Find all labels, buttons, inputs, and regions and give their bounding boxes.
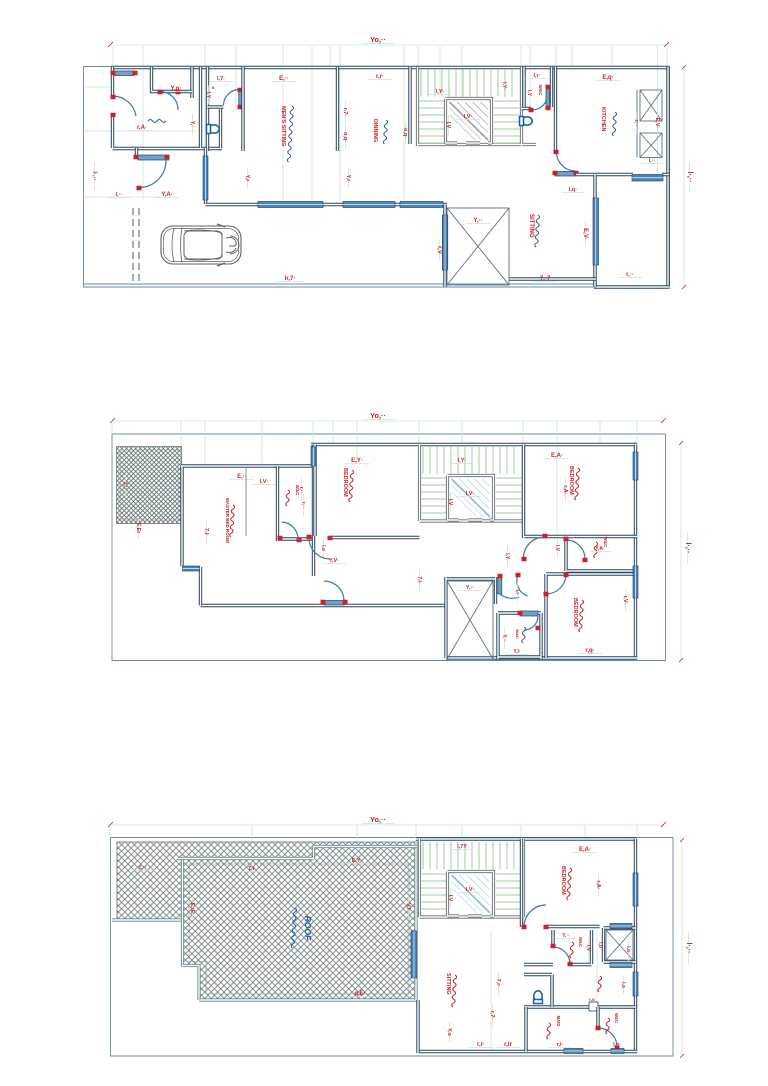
svg-text:7,l·: 7,l· bbox=[416, 576, 422, 584]
svg-text:E,rE: E,rE bbox=[189, 902, 195, 913]
svg-text:r,V: r,V bbox=[436, 246, 442, 254]
svg-text:Y,A·: Y,A· bbox=[595, 546, 605, 552]
svg-text:r,lr: r,lr bbox=[504, 1042, 512, 1048]
svg-text:r,r·: r,r· bbox=[376, 74, 384, 80]
svg-text:r,l·: r,l· bbox=[557, 1042, 564, 1048]
svg-text:E,V·: E,V· bbox=[582, 228, 588, 240]
svg-text:l,o·: l,o· bbox=[613, 1042, 621, 1048]
svg-text:l,V·: l,V· bbox=[466, 887, 475, 893]
svg-text:l,··: l,·· bbox=[116, 192, 123, 198]
svg-text:E,q·: E,q· bbox=[602, 75, 613, 81]
svg-text:Y,r: Y,r bbox=[244, 175, 250, 183]
svg-text:Y,··: Y,·· bbox=[466, 585, 474, 591]
svg-text:r,A·: r,A· bbox=[595, 880, 601, 889]
svg-text:l,V: l,V bbox=[585, 945, 591, 952]
svg-text:MEN'S SITTING: MEN'S SITTING bbox=[280, 106, 286, 146]
svg-text:l,V·: l,V· bbox=[466, 491, 475, 497]
svg-text:q,E·: q,E· bbox=[354, 991, 365, 997]
svg-text:Y,o·: Y,o· bbox=[171, 86, 182, 92]
svg-text:Y,··: Y,·· bbox=[501, 634, 507, 642]
svg-text:l,Y·: l,Y· bbox=[501, 82, 507, 90]
svg-text:BEDROOM: BEDROOM bbox=[560, 866, 566, 895]
svg-text:DINNING: DINNING bbox=[372, 119, 378, 142]
svg-text:Y,o: Y,o bbox=[446, 1028, 452, 1037]
svg-text:l,V·: l,V· bbox=[464, 114, 473, 120]
svg-text:l·,··: l·,·· bbox=[91, 171, 97, 180]
svg-text:l,V·: l,V· bbox=[260, 479, 269, 485]
svg-text:E,Er: E,Er bbox=[135, 522, 141, 534]
svg-text:Y,A·: Y,A· bbox=[161, 192, 172, 198]
svg-text:E,Y·: E,Y· bbox=[351, 458, 363, 464]
svg-text:l,o: l,o bbox=[320, 545, 326, 551]
svg-text:E,A·: E,A· bbox=[579, 847, 591, 853]
svg-text:r,r·: r,r· bbox=[477, 1042, 485, 1048]
svg-text:7,l·: 7,l· bbox=[248, 866, 256, 872]
svg-text:r,··: r,·· bbox=[298, 486, 304, 493]
svg-text:W&C: W&C bbox=[578, 937, 583, 947]
svg-text:r,··: r,·· bbox=[122, 482, 128, 490]
svg-text:r,o: r,o bbox=[589, 997, 595, 1002]
svg-text:l,7Y: l,7Y bbox=[457, 844, 467, 850]
svg-text:l,7·: l,7· bbox=[217, 76, 225, 82]
svg-text:MAID: MAID bbox=[556, 1016, 561, 1027]
svg-text:E,··: E,·· bbox=[279, 76, 289, 82]
svg-text:Y,r: Y,r bbox=[345, 175, 351, 183]
svg-text:r,7·: r,7· bbox=[342, 108, 348, 116]
svg-text:V,l·: V,l· bbox=[405, 903, 411, 911]
svg-text:W&C: W&C bbox=[515, 629, 520, 639]
svg-text:r,A·: r,A· bbox=[137, 125, 147, 131]
svg-text:lr,7·: lr,7· bbox=[285, 276, 296, 282]
svg-text:KITCHEN: KITCHEN bbox=[600, 107, 606, 131]
svg-text:l,o: l,o bbox=[620, 982, 626, 988]
svg-text:l,··: l,·· bbox=[649, 158, 656, 164]
svg-text:W&C: W&C bbox=[614, 1013, 619, 1023]
svg-text:7,·7: 7,·7 bbox=[540, 276, 551, 282]
svg-text:l,r·: l,r· bbox=[533, 73, 540, 79]
svg-text:E,Y·: E,Y· bbox=[352, 858, 363, 864]
svg-text:r,A·: r,A· bbox=[562, 485, 568, 494]
svg-text:r,··: r,·· bbox=[139, 865, 147, 871]
svg-text:l,r: l,r bbox=[514, 590, 520, 595]
svg-text:SITTING: SITTING bbox=[445, 973, 451, 995]
svg-text:l·,··: l·,·· bbox=[686, 172, 693, 183]
svg-text:Y,··: Y,·· bbox=[562, 933, 570, 939]
svg-text:l,Y: l,Y bbox=[205, 92, 211, 99]
svg-text:l·,··: l·,·· bbox=[685, 943, 692, 954]
svg-text:l,Y·: l,Y· bbox=[504, 553, 510, 561]
svg-text:W&C: W&C bbox=[538, 85, 543, 96]
svg-text:l,o: l,o bbox=[597, 942, 603, 948]
svg-text:SITTING: SITTING bbox=[528, 214, 534, 238]
svg-text:Y,l·: Y,l· bbox=[513, 649, 521, 655]
svg-text:r,q·: r,q· bbox=[585, 648, 594, 654]
svg-text:Y,V·: Y,V· bbox=[329, 558, 339, 564]
svg-text:l,V: l,V bbox=[447, 895, 453, 902]
svg-text:r,··: r,·· bbox=[633, 119, 639, 126]
svg-text:7,l·: 7,l· bbox=[203, 528, 209, 536]
svg-text:ROOF: ROOF bbox=[303, 916, 313, 941]
svg-text:E,··: E,·· bbox=[237, 474, 247, 480]
svg-text:BEDROOM: BEDROOM bbox=[342, 468, 348, 497]
svg-text:r,··: r,·· bbox=[626, 272, 634, 278]
svg-text:l,V: l,V bbox=[445, 122, 451, 129]
svg-text:r,V·: r,V· bbox=[622, 596, 628, 605]
svg-text:l,Y: l,Y bbox=[526, 90, 532, 97]
svg-text:BEDROOM: BEDROOM bbox=[572, 598, 578, 627]
svg-text:l,Y·: l,Y· bbox=[458, 458, 467, 464]
svg-text:Yo,··: Yo,·· bbox=[370, 815, 386, 824]
svg-text:Yo,··: Yo,·· bbox=[370, 411, 386, 420]
svg-text:l,V: l,V bbox=[447, 499, 453, 506]
svg-text:o: o bbox=[212, 85, 215, 90]
svg-text:7,r·: 7,r· bbox=[495, 979, 501, 988]
svg-text:l,o·: l,o· bbox=[625, 946, 631, 954]
svg-text:Y,··: Y,·· bbox=[474, 218, 483, 224]
svg-text:r,··: r,·· bbox=[300, 502, 306, 509]
svg-text:l,Y·: l,Y· bbox=[436, 89, 445, 95]
svg-text:Y,·: Y,· bbox=[189, 121, 195, 128]
svg-text:E,V·: E,V· bbox=[654, 118, 660, 129]
svg-text:l·,··: l·,·· bbox=[684, 543, 691, 554]
svg-text:o,q·: o,q· bbox=[402, 128, 408, 138]
svg-text:Yo,··: Yo,·· bbox=[370, 35, 386, 44]
svg-text:r,7·: r,7· bbox=[489, 1011, 495, 1019]
svg-text:l,q·: l,q· bbox=[569, 187, 577, 193]
svg-text:l,V: l,V bbox=[554, 545, 560, 552]
svg-text:E,A·: E,A· bbox=[551, 453, 563, 459]
svg-text:o,q·: o,q· bbox=[342, 132, 348, 142]
svg-text:MASTER BED ROOM: MASTER BED ROOM bbox=[225, 498, 230, 543]
